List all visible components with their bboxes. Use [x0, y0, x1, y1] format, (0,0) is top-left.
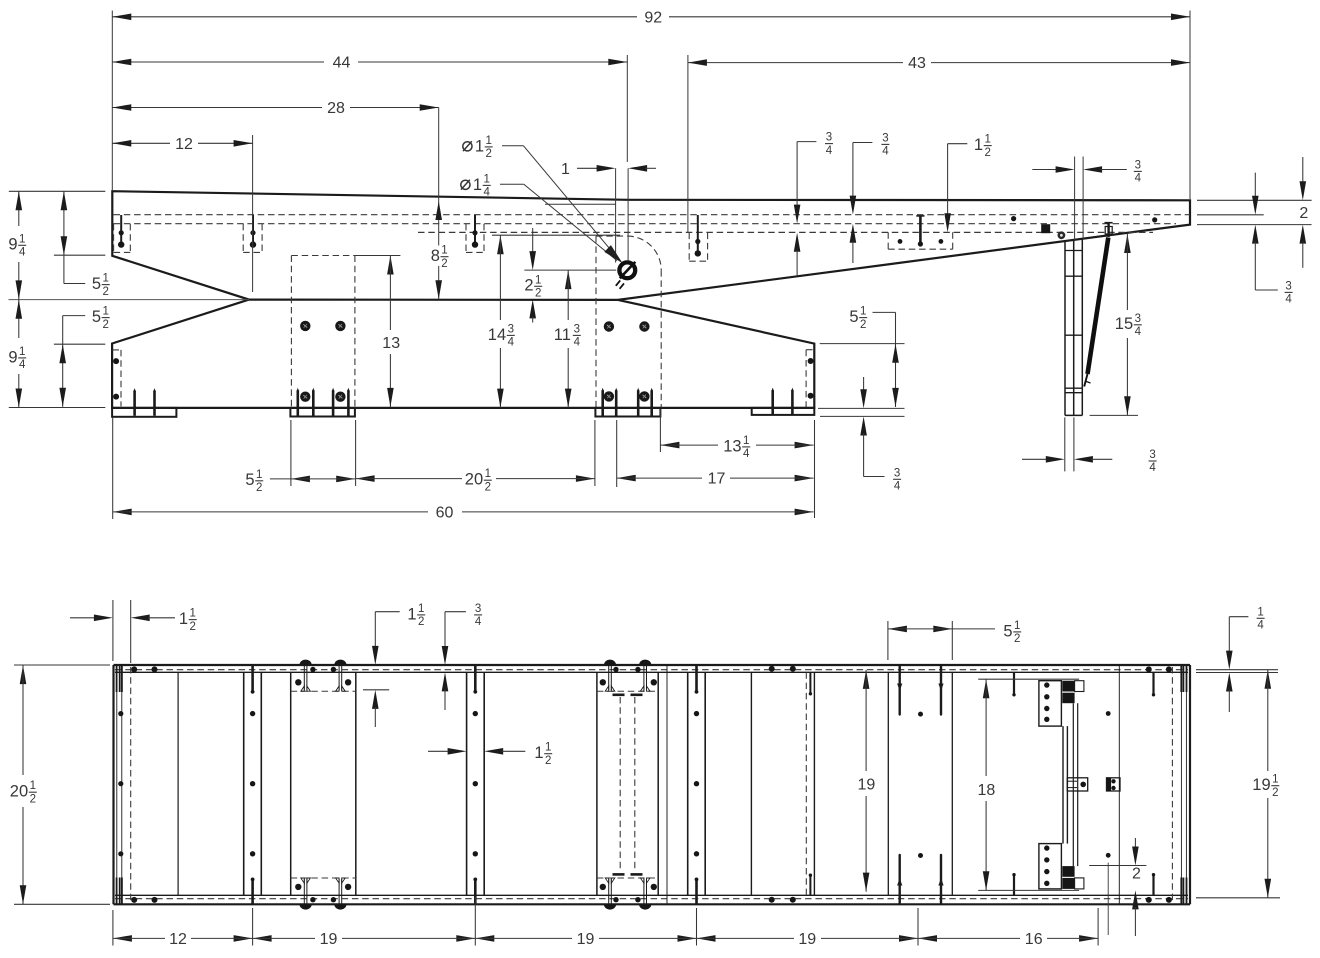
svg-text:5: 5	[1003, 622, 1012, 640]
svg-text:2: 2	[256, 482, 262, 494]
svg-text:28: 28	[327, 100, 345, 117]
svg-text:2: 2	[1272, 787, 1278, 799]
svg-text:1: 1	[30, 780, 36, 792]
svg-text:20: 20	[10, 783, 28, 801]
svg-text:2: 2	[485, 148, 491, 160]
svg-text:1: 1	[860, 306, 866, 318]
svg-text:1: 1	[485, 135, 491, 147]
svg-text:1: 1	[1257, 606, 1263, 618]
svg-text:1: 1	[189, 608, 195, 620]
svg-text:19: 19	[577, 931, 595, 948]
svg-text:2: 2	[1132, 865, 1141, 882]
svg-text:3: 3	[882, 132, 888, 144]
svg-text:5: 5	[245, 471, 254, 489]
svg-text:1: 1	[418, 603, 424, 615]
svg-text:4: 4	[743, 448, 750, 460]
svg-text:9: 9	[8, 236, 17, 254]
svg-text:1: 1	[535, 274, 541, 286]
svg-text:4: 4	[894, 481, 901, 493]
svg-text:5: 5	[92, 275, 101, 293]
svg-text:1: 1	[473, 176, 482, 194]
svg-text:1: 1	[485, 468, 491, 480]
svg-text:11: 11	[554, 326, 571, 344]
svg-text:4: 4	[1135, 326, 1142, 338]
svg-text:1: 1	[974, 136, 983, 154]
svg-text:43: 43	[908, 55, 926, 72]
svg-text:4: 4	[1285, 294, 1292, 306]
svg-text:1: 1	[475, 137, 484, 155]
svg-text:2: 2	[545, 755, 551, 767]
svg-text:1: 1	[102, 273, 108, 285]
svg-text:44: 44	[333, 55, 351, 72]
svg-text:1: 1	[483, 173, 489, 185]
svg-text:2: 2	[30, 793, 36, 805]
svg-text:19: 19	[1252, 776, 1270, 794]
svg-text:2: 2	[102, 286, 108, 298]
svg-text:12: 12	[175, 136, 193, 153]
svg-text:1: 1	[1014, 620, 1020, 632]
svg-text:4: 4	[574, 337, 581, 349]
svg-text:16: 16	[1025, 931, 1043, 948]
svg-text:1: 1	[743, 435, 749, 447]
svg-text:15: 15	[1115, 315, 1133, 333]
svg-text:4: 4	[882, 146, 889, 158]
svg-text:3: 3	[508, 323, 514, 335]
svg-text:2: 2	[984, 147, 990, 159]
svg-text:14: 14	[488, 326, 506, 344]
svg-text:3: 3	[1149, 449, 1155, 461]
svg-text:3: 3	[826, 132, 832, 144]
svg-text:2: 2	[1299, 205, 1308, 222]
svg-text:4: 4	[508, 337, 515, 349]
svg-text:19: 19	[858, 776, 876, 793]
svg-text:1: 1	[1272, 774, 1278, 786]
svg-text:5: 5	[92, 308, 101, 326]
svg-text:2: 2	[102, 319, 108, 331]
svg-text:2: 2	[441, 258, 447, 270]
svg-text:3: 3	[475, 603, 481, 615]
svg-text:4: 4	[1149, 462, 1156, 474]
svg-text:1: 1	[441, 245, 447, 257]
svg-text:3: 3	[574, 323, 580, 335]
svg-text:2: 2	[524, 277, 533, 295]
svg-text:12: 12	[169, 931, 187, 948]
svg-text:1: 1	[19, 233, 25, 245]
svg-text:4: 4	[19, 359, 26, 371]
svg-text:4: 4	[483, 187, 490, 199]
svg-text:4: 4	[19, 247, 26, 259]
svg-text:60: 60	[436, 504, 454, 521]
svg-text:1: 1	[179, 610, 188, 628]
svg-text:2: 2	[1014, 633, 1020, 645]
svg-text:18: 18	[978, 782, 996, 799]
svg-text:9: 9	[8, 348, 17, 366]
svg-text:2: 2	[535, 288, 541, 300]
svg-text:13: 13	[382, 335, 400, 352]
svg-text:1: 1	[545, 742, 551, 754]
svg-text:4: 4	[1135, 173, 1142, 185]
svg-text:4: 4	[475, 616, 482, 628]
svg-text:1: 1	[407, 605, 416, 623]
svg-text:1: 1	[102, 306, 108, 318]
svg-text:8: 8	[431, 247, 440, 265]
svg-text:1: 1	[984, 134, 990, 146]
svg-text:4: 4	[826, 145, 833, 157]
svg-text:17: 17	[708, 471, 726, 488]
svg-text:19: 19	[798, 931, 816, 948]
svg-text:3: 3	[894, 467, 900, 479]
svg-text:3: 3	[1135, 313, 1141, 325]
svg-text:13: 13	[723, 437, 741, 455]
svg-text:3: 3	[1285, 280, 1291, 292]
svg-text:2: 2	[189, 621, 195, 633]
svg-text:3: 3	[1135, 159, 1141, 171]
svg-text:1: 1	[561, 161, 570, 178]
svg-text:4: 4	[1257, 620, 1264, 632]
svg-text:5: 5	[849, 308, 858, 326]
svg-text:1: 1	[19, 346, 25, 358]
svg-text:1: 1	[534, 744, 543, 762]
svg-text:92: 92	[644, 9, 662, 26]
svg-text:20: 20	[465, 471, 483, 489]
svg-text:1: 1	[256, 469, 262, 481]
svg-text:2: 2	[485, 481, 491, 493]
svg-text:19: 19	[320, 931, 338, 948]
svg-text:2: 2	[860, 319, 866, 331]
svg-text:2: 2	[418, 616, 424, 628]
